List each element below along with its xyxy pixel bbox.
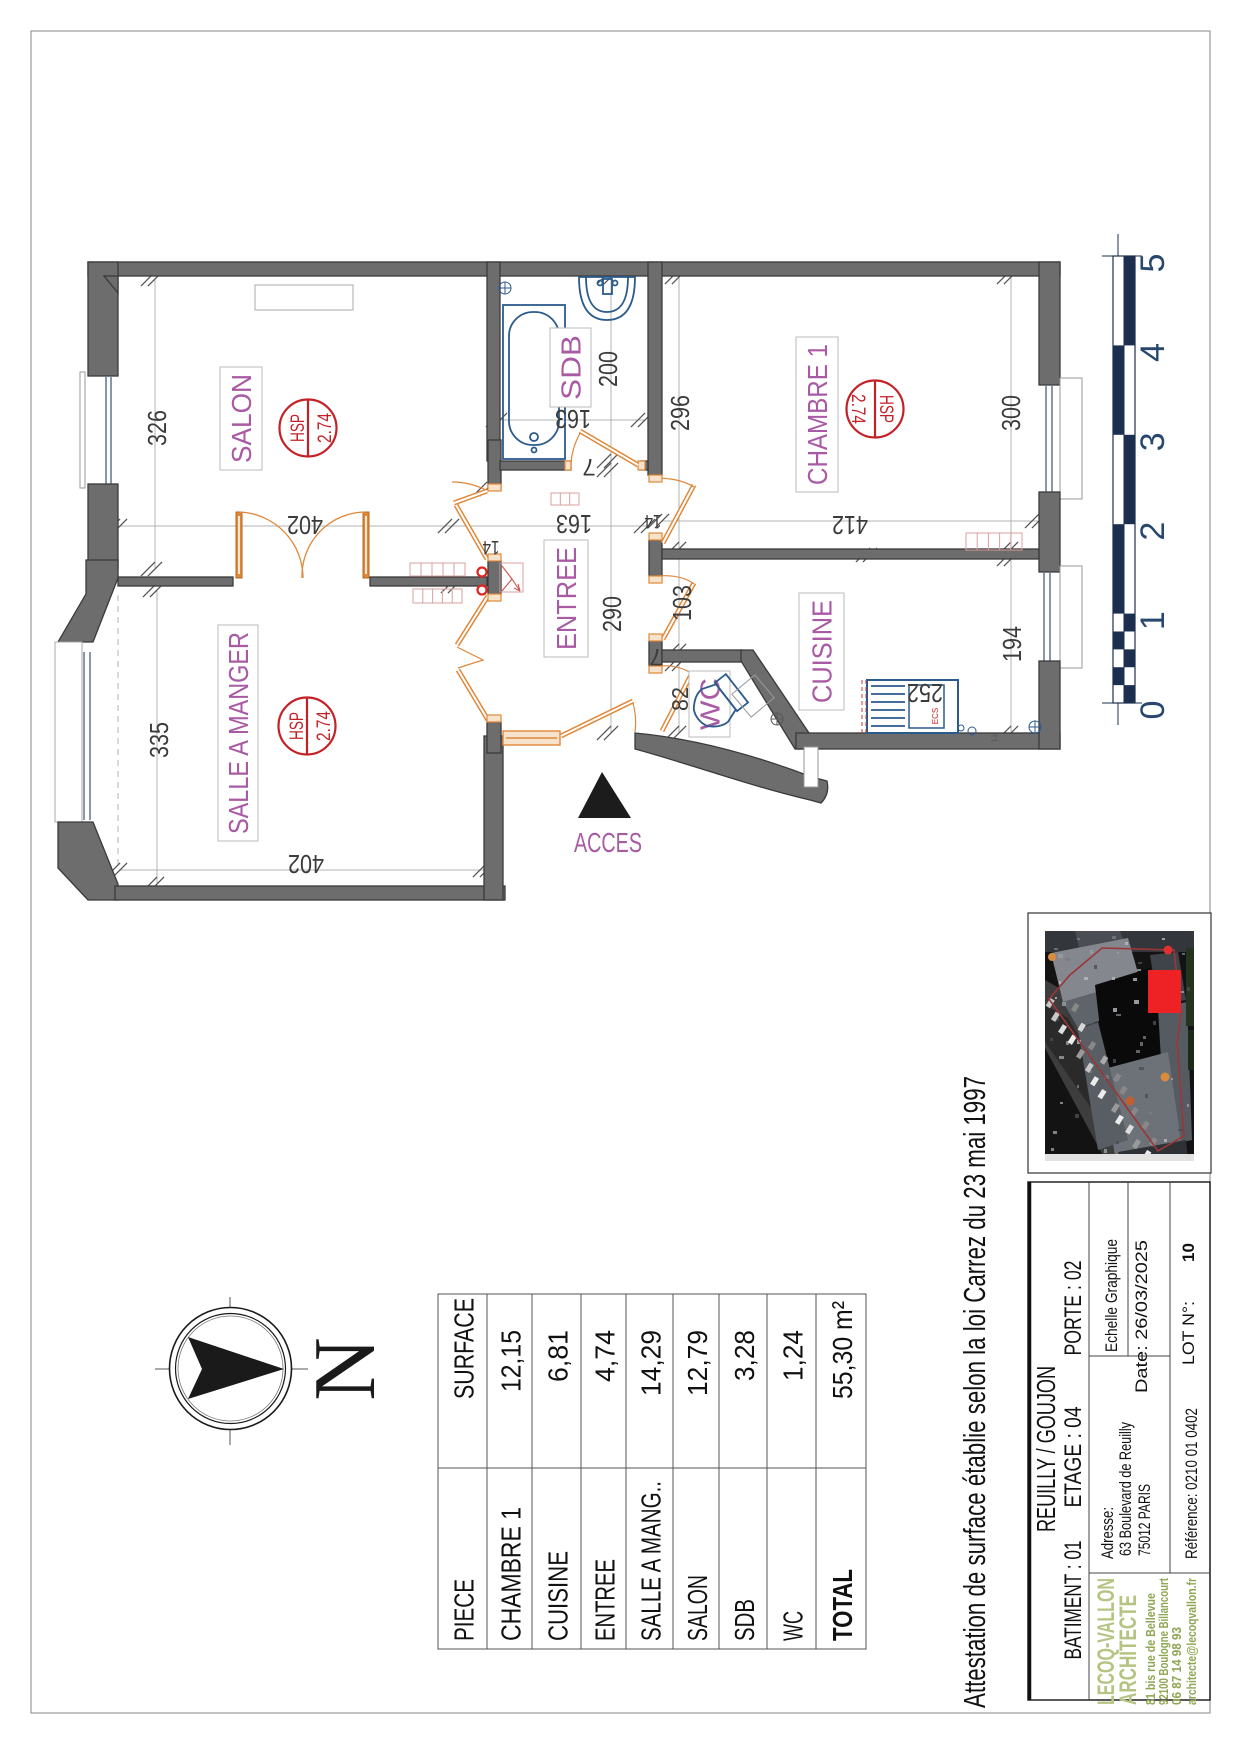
svg-text:CHAMBRE 1: CHAMBRE 1 — [802, 344, 833, 485]
svg-text:HSP: HSP — [875, 395, 896, 423]
svg-text:1: 1 — [1134, 611, 1172, 630]
svg-text:ACCES: ACCES — [574, 827, 642, 858]
svg-text:SDB: SDB — [729, 1599, 760, 1641]
svg-text:12,79: 12,79 — [682, 1330, 713, 1396]
svg-text:75012 PARIS: 75012 PARIS — [1135, 1484, 1154, 1556]
svg-text:12,15: 12,15 — [496, 1330, 527, 1392]
svg-text:CUISINE: CUISINE — [807, 600, 838, 703]
svg-text:5: 5 — [1134, 254, 1172, 273]
svg-text:4: 4 — [1134, 343, 1172, 362]
svg-text:3: 3 — [1134, 432, 1172, 451]
svg-text:ENTREE: ENTREE — [590, 1559, 621, 1641]
svg-text:SALLE A MANGER: SALLE A MANGER — [223, 632, 254, 834]
svg-text:SALON: SALON — [682, 1575, 713, 1641]
svg-text:Echelle Graphique: Echelle Graphique — [1102, 1239, 1121, 1352]
svg-text:2.74: 2.74 — [314, 711, 335, 741]
svg-text:63 Boulevard de Reuilly: 63 Boulevard de Reuilly — [1116, 1422, 1135, 1556]
svg-text:10: 10 — [1179, 1243, 1198, 1262]
svg-text:163: 163 — [555, 404, 591, 434]
svg-text:architecte@lecoqvallon.fr: architecte@lecoqvallon.fr — [1184, 1578, 1199, 1705]
svg-text:ETAGE : 04: ETAGE : 04 — [1060, 1407, 1087, 1508]
svg-text:06 87 14 98 93: 06 87 14 98 93 — [1169, 1627, 1184, 1705]
svg-text:103: 103 — [667, 585, 697, 621]
svg-text:SALON: SALON — [226, 374, 257, 463]
svg-text:LOT N°:: LOT N°: — [1179, 1301, 1198, 1365]
svg-text:200: 200 — [593, 351, 623, 387]
svg-text:7: 7 — [582, 453, 595, 480]
svg-text:TOTAL: TOTAL — [827, 1569, 858, 1641]
svg-text:BATIMENT : 01: BATIMENT : 01 — [1060, 1541, 1087, 1660]
svg-text:N: N — [297, 1337, 394, 1401]
svg-text:CUISINE: CUISINE — [543, 1551, 574, 1641]
svg-text:290: 290 — [597, 596, 627, 632]
svg-text:14: 14 — [644, 510, 661, 531]
svg-text:LL: LL — [990, 732, 999, 741]
svg-text:4,74: 4,74 — [590, 1330, 621, 1382]
svg-text:2.74: 2.74 — [315, 413, 336, 443]
svg-text:55,30 m²: 55,30 m² — [827, 1301, 858, 1399]
svg-text:1,24: 1,24 — [778, 1330, 809, 1381]
svg-text:296: 296 — [665, 395, 695, 431]
svg-text:300: 300 — [996, 395, 1026, 431]
svg-text:7: 7 — [649, 643, 662, 670]
svg-text:SALLE A MANG..: SALLE A MANG.. — [636, 1481, 667, 1641]
svg-text:163: 163 — [556, 509, 592, 539]
svg-text:Attestation de surface établie: Attestation de surface établie selon la … — [957, 1076, 992, 1708]
svg-text:PIECE: PIECE — [449, 1579, 480, 1641]
svg-text:HSP: HSP — [288, 414, 309, 442]
svg-text:CHAMBRE 1: CHAMBRE 1 — [496, 1507, 527, 1641]
svg-text:WC: WC — [778, 1611, 809, 1641]
svg-text:Adresse:: Adresse: — [1098, 1507, 1117, 1559]
svg-text:ARCHITECTE: ARCHITECTE — [1115, 1595, 1142, 1705]
svg-text:Date: 26/03/2025: Date: 26/03/2025 — [1132, 1240, 1151, 1393]
svg-text:82: 82 — [667, 687, 693, 711]
svg-text:2: 2 — [1134, 522, 1172, 541]
svg-text:14: 14 — [482, 536, 499, 557]
svg-text:326: 326 — [142, 410, 172, 446]
svg-text:412: 412 — [832, 510, 868, 540]
svg-text:REUILLY / GOUJON: REUILLY / GOUJON — [1031, 1366, 1061, 1532]
svg-text:SDB: SDB — [556, 335, 587, 400]
svg-text:335: 335 — [144, 722, 174, 758]
svg-text:HSP: HSP — [287, 712, 308, 740]
svg-text:ECS: ECS — [931, 708, 940, 724]
svg-text:2.74: 2.74 — [847, 394, 868, 424]
svg-text:ENTREE: ENTREE — [551, 547, 582, 650]
svg-text:14,29: 14,29 — [636, 1330, 667, 1396]
svg-text:SURFACE: SURFACE — [449, 1298, 480, 1399]
svg-text:402: 402 — [288, 849, 324, 879]
svg-text:3,28: 3,28 — [729, 1330, 760, 1381]
svg-text:Référence: 0210 01 0402: Référence: 0210 01 0402 — [1182, 1408, 1201, 1559]
svg-text:0: 0 — [1134, 701, 1172, 720]
svg-text:252: 252 — [907, 678, 943, 708]
svg-text:6,81: 6,81 — [543, 1330, 574, 1382]
svg-text:402: 402 — [287, 510, 323, 540]
svg-text:194: 194 — [997, 626, 1027, 662]
svg-text:PORTE : 02: PORTE : 02 — [1060, 1261, 1087, 1356]
